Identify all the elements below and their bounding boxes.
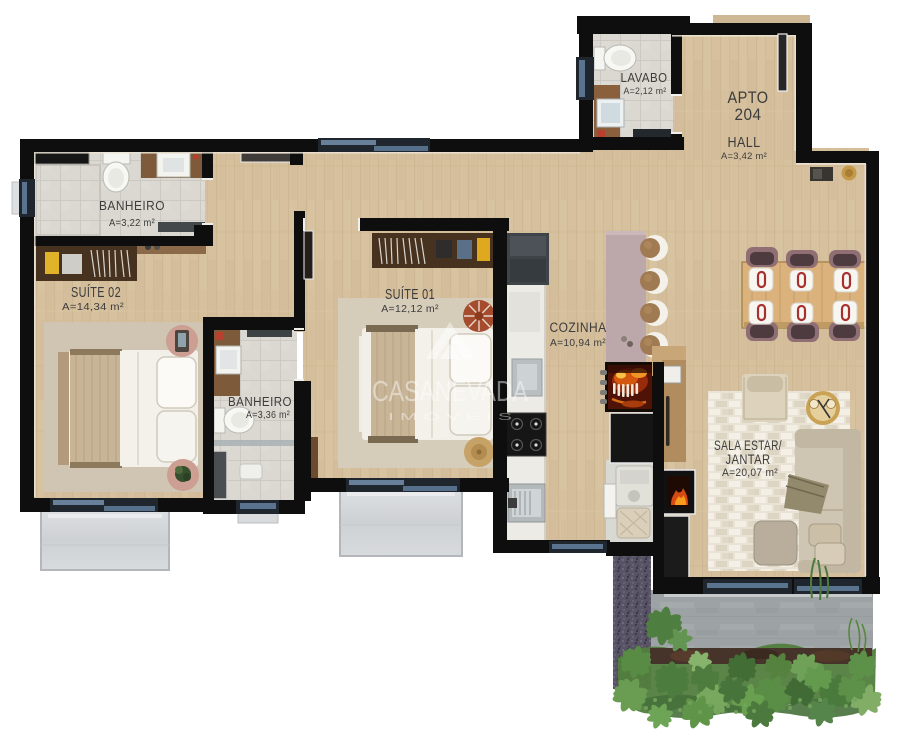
svg-text:SUÍTE 02: SUÍTE 02 <box>71 284 121 301</box>
svg-text:COZINHA: COZINHA <box>550 320 607 335</box>
svg-text:A=12,12 m²: A=12,12 m² <box>381 303 439 315</box>
svg-text:A=3,42 m²: A=3,42 m² <box>721 151 767 162</box>
svg-text:HALL: HALL <box>728 134 761 151</box>
svg-text:JANTAR: JANTAR <box>726 452 771 467</box>
svg-text:SUÍTE 01: SUÍTE 01 <box>385 286 435 303</box>
svg-text:A=3,22 m²: A=3,22 m² <box>109 218 155 229</box>
svg-text:SALA ESTAR/: SALA ESTAR/ <box>714 438 782 453</box>
svg-text:204: 204 <box>735 105 762 124</box>
svg-text:A=20,07 m²: A=20,07 m² <box>722 467 778 479</box>
svg-text:A=14,34 m²: A=14,34 m² <box>62 301 124 313</box>
svg-text:CASANEVADA: CASANEVADA <box>372 376 529 408</box>
svg-text:A=10,94 m²: A=10,94 m² <box>550 337 606 349</box>
svg-text:LAVABO: LAVABO <box>621 71 668 85</box>
svg-text:A=3,36 m²: A=3,36 m² <box>246 410 290 421</box>
svg-text:BANHEIRO: BANHEIRO <box>99 199 165 213</box>
svg-text:I M Ó V E I S: I M Ó V E I S <box>388 410 512 423</box>
svg-text:BANHEIRO: BANHEIRO <box>228 394 292 409</box>
svg-text:A=2,12 m²: A=2,12 m² <box>624 86 667 97</box>
